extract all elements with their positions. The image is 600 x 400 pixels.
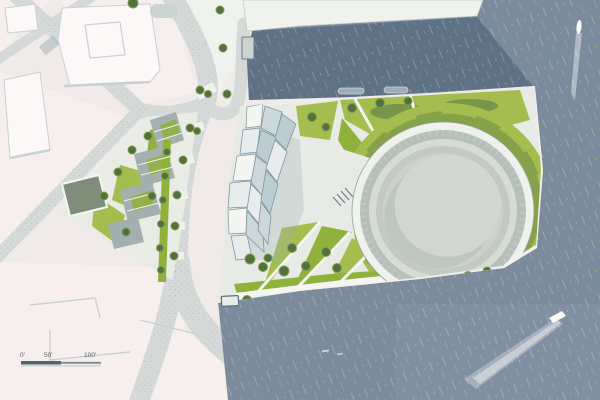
tree-icon (179, 156, 187, 164)
tree-icon (162, 173, 169, 180)
city-building-corner (5, 4, 38, 33)
tree-icon (144, 132, 152, 140)
facade-panel (228, 208, 247, 234)
facade-panel (246, 104, 263, 128)
tree-icon (259, 263, 268, 272)
tree-icon (128, 0, 138, 8)
round-building (150, 4, 178, 18)
scale-bar-segment-dark (21, 361, 61, 365)
tree-icon (157, 245, 164, 252)
moored-pontoon (384, 87, 408, 93)
tree-icon (333, 264, 342, 273)
tree-icon (219, 44, 227, 52)
tree-icon (205, 91, 212, 98)
site-plan-map: 0' 50' 100' (0, 0, 600, 400)
tree-icon (322, 123, 330, 131)
tree-icon (279, 266, 289, 276)
scale-label-zero: 0' (20, 352, 25, 359)
tree-icon (196, 86, 204, 94)
tree-icon (302, 262, 311, 271)
tree-icon (186, 124, 194, 132)
tree-icon (148, 192, 156, 200)
tree-icon (122, 228, 130, 236)
tree-icon (114, 168, 122, 176)
scale-label-fifty: 50' (44, 352, 52, 359)
city-building-large (58, 4, 160, 86)
scale-label-hundred: 100' (84, 352, 96, 359)
tree-icon (223, 90, 231, 98)
scale-bar-baseline (21, 366, 101, 367)
scale-bar-segment-light (61, 362, 101, 364)
tree-icon (100, 192, 108, 200)
tree-icon (404, 97, 412, 105)
tree-icon (164, 149, 171, 156)
waterfront-arena-site-plan: 0' 50' 100' (0, 0, 600, 400)
tree-icon (308, 113, 317, 122)
tree-icon (376, 99, 385, 108)
basin-dock (242, 37, 254, 59)
tree-icon (158, 267, 165, 274)
tree-icon (216, 6, 224, 14)
tree-icon (171, 222, 179, 230)
tree-icon (245, 254, 255, 264)
tree-icon (194, 128, 201, 135)
tree-icon (348, 104, 357, 113)
tree-icon (128, 146, 136, 154)
tree-icon (173, 191, 181, 199)
tree-icon (288, 244, 297, 253)
tree-icon (160, 197, 167, 204)
floating-dock (221, 296, 239, 307)
tree-icon (158, 221, 165, 228)
tree-icon (170, 252, 178, 260)
tree-icon (264, 254, 272, 262)
tree-icon (322, 248, 331, 257)
moored-pontoon (338, 88, 364, 94)
